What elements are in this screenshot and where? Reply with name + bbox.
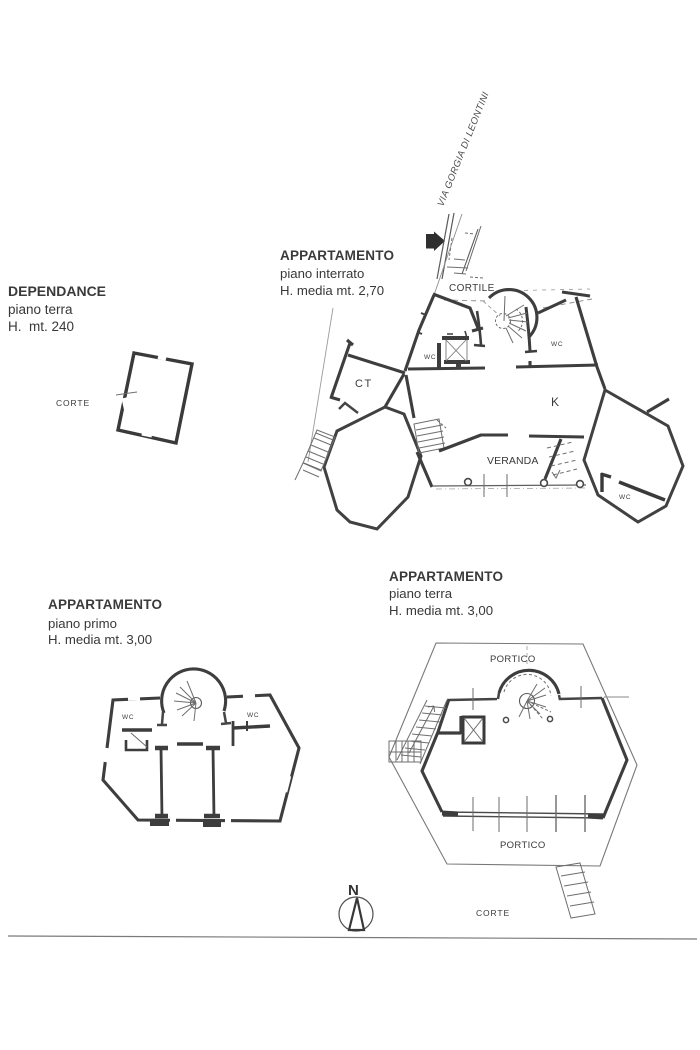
svg-text:WC: WC (424, 354, 436, 361)
svg-text:WC: WC (551, 341, 563, 348)
svg-text:N: N (348, 882, 359, 899)
svg-text:CT: CT (355, 378, 373, 390)
svg-text:piano terra: piano terra (8, 302, 73, 317)
svg-text:H. media mt. 3,00: H. media mt. 3,00 (389, 603, 493, 618)
svg-text:VERANDA: VERANDA (487, 455, 538, 467)
svg-text:H. media mt. 2,70: H. media mt. 2,70 (280, 283, 384, 298)
svg-text:PORTICO: PORTICO (500, 840, 546, 851)
svg-text:WC: WC (122, 714, 134, 721)
svg-text:APPARTAMENTO: APPARTAMENTO (48, 597, 162, 612)
svg-text:DEPENDANCE: DEPENDANCE (8, 283, 106, 299)
svg-text:WC: WC (619, 494, 631, 501)
svg-text:piano interrato: piano interrato (280, 266, 364, 281)
svg-text:APPARTAMENTO: APPARTAMENTO (389, 569, 503, 584)
svg-text:K: K (551, 395, 560, 409)
svg-text:H. mt. 240: H. mt. 240 (8, 319, 74, 334)
svg-text:CORTILE: CORTILE (449, 283, 495, 294)
svg-text:CORTE: CORTE (56, 398, 90, 408)
svg-text:piano terra: piano terra (389, 586, 453, 601)
svg-text:piano primo: piano primo (48, 616, 117, 631)
svg-text:WC: WC (247, 712, 259, 719)
svg-text:CORTE: CORTE (476, 908, 510, 918)
svg-text:PORTICO: PORTICO (490, 654, 536, 665)
svg-text:H. media mt. 3,00: H. media mt. 3,00 (48, 632, 152, 647)
svg-text:APPARTAMENTO: APPARTAMENTO (280, 248, 394, 263)
